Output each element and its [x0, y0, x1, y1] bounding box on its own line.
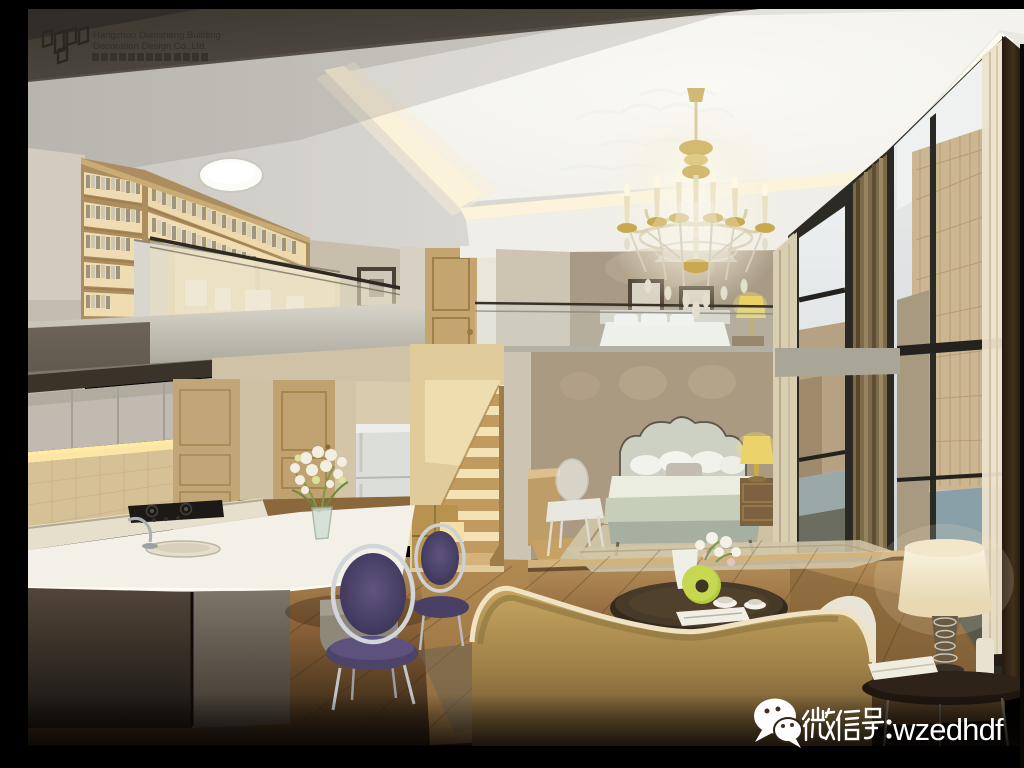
svg-text:Decoration Design Co.,Ltd.: Decoration Design Co.,Ltd. [93, 41, 207, 52]
svg-text:wzedhdf: wzedhdf [892, 712, 1004, 747]
svg-text:Hangzhou Diansheng Building: Hangzhou Diansheng Building [93, 30, 221, 41]
